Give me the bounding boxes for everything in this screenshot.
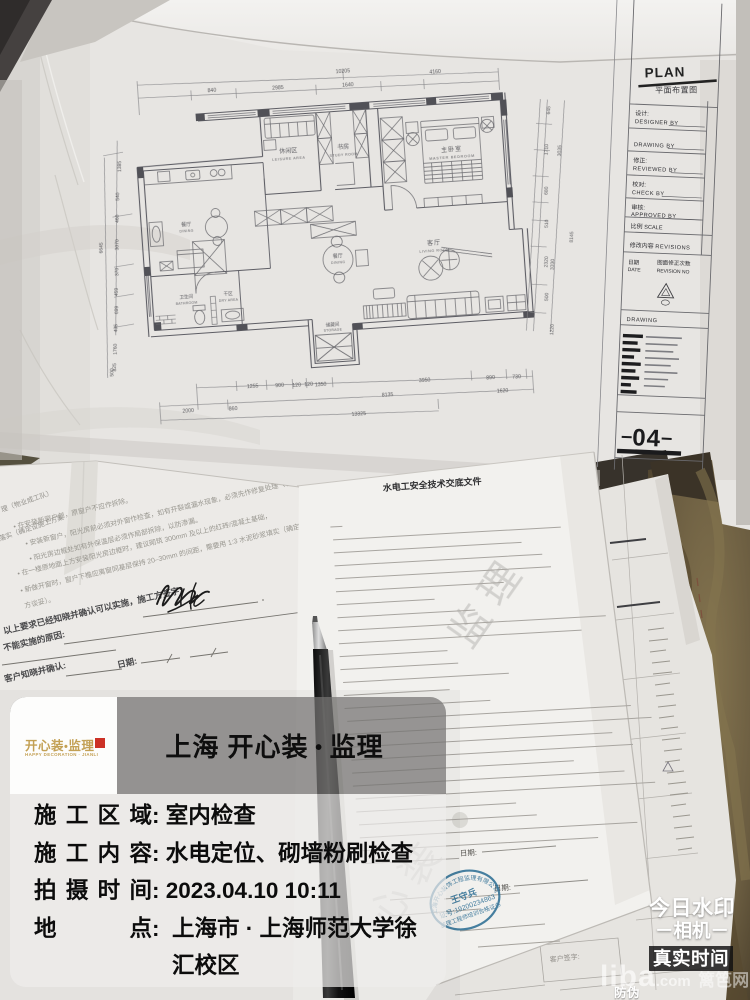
svg-text:日期:: 日期: <box>460 848 478 858</box>
svg-text:699: 699 <box>114 306 120 315</box>
svg-text:1620: 1620 <box>497 388 509 395</box>
svg-text:2000: 2000 <box>182 408 194 415</box>
svg-text:餐厅: 餐厅 <box>181 221 191 229</box>
svg-text:04: 04 <box>632 424 662 452</box>
svg-text:10205: 10205 <box>336 68 351 75</box>
svg-text:1640: 1640 <box>342 82 354 89</box>
svg-text:3330: 3330 <box>550 259 557 271</box>
svg-text:730: 730 <box>512 374 521 381</box>
svg-text:日期: 日期 <box>628 259 640 266</box>
svg-text:4160: 4160 <box>429 69 441 76</box>
svg-text:1760: 1760 <box>113 343 119 354</box>
svg-text:900: 900 <box>275 383 284 390</box>
svg-text:PLAN: PLAN <box>644 64 685 80</box>
svg-text:459: 459 <box>114 288 120 297</box>
svg-text:120: 120 <box>304 382 313 389</box>
svg-text:6645: 6645 <box>99 242 105 253</box>
svg-text:1350: 1350 <box>315 382 327 389</box>
svg-text:DATE: DATE <box>628 267 642 274</box>
svg-text:2985: 2985 <box>272 85 284 92</box>
svg-text:435: 435 <box>113 324 119 333</box>
svg-text:890: 890 <box>486 375 495 382</box>
svg-text:8135: 8135 <box>382 392 394 399</box>
svg-text:3035: 3035 <box>557 145 564 157</box>
svg-text:680: 680 <box>544 186 550 195</box>
svg-text:645: 645 <box>546 106 552 115</box>
svg-text:370: 370 <box>114 268 120 277</box>
svg-text:3950: 3950 <box>419 377 431 384</box>
svg-text:500: 500 <box>109 368 115 377</box>
svg-text:510: 510 <box>544 219 550 228</box>
svg-text:1710: 1710 <box>544 144 551 156</box>
svg-text:540: 540 <box>115 192 121 201</box>
svg-text:1385: 1385 <box>117 161 123 172</box>
svg-text:860: 860 <box>229 406 238 413</box>
svg-text:500: 500 <box>544 292 550 301</box>
svg-text:840: 840 <box>207 88 216 95</box>
svg-text:平面布置图: 平面布置图 <box>655 85 698 95</box>
svg-text:1255: 1255 <box>247 383 259 390</box>
svg-text:餐厅: 餐厅 <box>333 252 343 260</box>
svg-text:120: 120 <box>292 382 301 389</box>
svg-text:13325: 13325 <box>351 411 366 418</box>
svg-text:460: 460 <box>115 214 121 223</box>
svg-text:8145: 8145 <box>569 231 576 243</box>
svg-text:1220: 1220 <box>549 324 556 336</box>
svg-text:3070: 3070 <box>114 239 120 250</box>
